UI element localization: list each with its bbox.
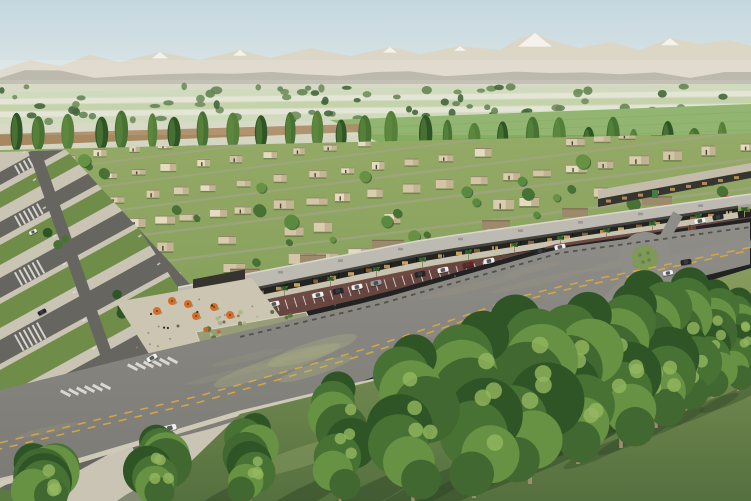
house-roofline (598, 161, 613, 162)
tree-highlight (740, 339, 749, 348)
house-roofline (132, 169, 146, 170)
tree-highlight (712, 315, 722, 325)
palm-crown (513, 243, 516, 246)
rooftop-unit (278, 271, 283, 274)
pedestrian (150, 313, 152, 315)
house-door (327, 147, 328, 150)
plaza-texture (198, 299, 200, 301)
house-side (139, 218, 146, 227)
plaza-texture (224, 314, 226, 316)
house-side (170, 163, 176, 171)
palm-trunk (652, 224, 653, 231)
house-door (314, 173, 315, 177)
tree-highlight (407, 400, 422, 415)
median-curb-dash (537, 258, 542, 259)
yard-tree (517, 177, 526, 186)
house-shadow (566, 145, 585, 146)
median-curb-dash (249, 334, 254, 335)
median-curb-dash (681, 236, 686, 237)
house-roofline (309, 170, 326, 171)
poplar-highlight (97, 119, 104, 147)
tree-highlight (408, 423, 423, 438)
yard-tree (461, 186, 472, 197)
house-roofline (197, 159, 210, 160)
shrub (210, 333, 213, 336)
house-roofline (223, 263, 244, 264)
house-door (602, 164, 603, 168)
median-curb-dash (636, 242, 641, 243)
house-roofline (210, 209, 227, 210)
house-shadow (519, 206, 539, 208)
median-curb-dash (708, 232, 713, 233)
light-pole-head (334, 304, 336, 306)
median-curb-dash (384, 302, 389, 303)
house-shadow (439, 161, 453, 162)
house-shadow (367, 197, 382, 199)
tree-highlight (535, 365, 552, 382)
storefront-glow (402, 261, 408, 265)
yard-tree (393, 209, 402, 218)
median-curb-dash (609, 246, 614, 247)
house-roofline (594, 187, 609, 188)
palm-crown (605, 229, 608, 232)
median-curb-dash (582, 249, 587, 250)
median-curb-dash (573, 251, 578, 252)
far-window-glow (670, 188, 675, 191)
house-door (745, 147, 746, 150)
median-curb-dash (546, 256, 551, 257)
tree-highlight (423, 425, 438, 440)
rooftop-unit (638, 213, 643, 216)
poplar-highlight (149, 116, 154, 147)
house-side (220, 209, 227, 217)
house-shadow (147, 198, 159, 199)
house-door (297, 150, 298, 154)
house-shadow (132, 175, 146, 176)
yard-tree (284, 215, 299, 230)
shrub (270, 310, 274, 314)
house-side (674, 150, 681, 160)
house-door (508, 176, 509, 180)
rooftop-unit (458, 238, 463, 241)
house-shadow (629, 164, 648, 166)
house-door (635, 159, 636, 164)
scene-canvas (0, 0, 751, 501)
house-shadow (237, 186, 251, 187)
poplar-highlight (286, 115, 291, 147)
median-curb-dash (321, 317, 326, 318)
house-roofline (128, 218, 145, 219)
house-shadow (358, 146, 370, 147)
yard-tree (553, 194, 561, 202)
poplar-highlight (116, 114, 123, 147)
tree-highlight (532, 337, 549, 354)
storefront-glow (366, 269, 372, 273)
median-curb-dash (375, 304, 380, 305)
shrub (217, 330, 221, 334)
palm-crown (743, 207, 746, 210)
median-curb-dash (501, 268, 506, 269)
yard-tree (256, 183, 266, 193)
house-roofline (372, 161, 384, 162)
house-roofline (147, 190, 159, 191)
tree-highlight (248, 468, 258, 478)
poplar-highlight (228, 116, 235, 147)
median-curb-dash (492, 271, 497, 272)
house-side (167, 216, 175, 224)
house-roofline (274, 199, 294, 200)
median-curb-dash (240, 336, 245, 337)
shrub (218, 321, 223, 326)
yard-tree (533, 212, 540, 219)
median-curb-dash (420, 291, 425, 292)
median-curb-dash (438, 286, 443, 287)
back-building (562, 208, 588, 217)
house-roofline (314, 222, 332, 223)
house-door (669, 155, 670, 160)
rooftop-unit (338, 259, 343, 262)
house-roofline (741, 144, 751, 145)
house-door (201, 162, 202, 166)
plaza-texture (149, 343, 151, 345)
house-shadow (702, 155, 716, 157)
median-curb-dash (735, 229, 740, 230)
palm-trunk (330, 280, 331, 287)
tree-highlight (149, 473, 160, 484)
patio-table (223, 321, 226, 324)
tree-foliage (329, 469, 360, 500)
house-roofline (180, 214, 200, 215)
rooftop-unit (698, 204, 703, 207)
house-side (344, 192, 350, 201)
far-window-glow (686, 185, 691, 188)
house-roofline (702, 146, 716, 147)
far-window-glow (734, 176, 739, 179)
house-roofline (439, 154, 453, 155)
median-curb-dash (447, 284, 452, 285)
median-curb-dash (672, 237, 677, 238)
house-side (319, 197, 327, 204)
palm-trunk (284, 289, 285, 296)
house-side (167, 242, 173, 252)
palm-crown (697, 215, 700, 218)
house-door (150, 193, 151, 197)
house-side (325, 222, 332, 232)
palm-trunk (744, 210, 745, 217)
tree-highlight (155, 454, 166, 465)
median-curb-dash (510, 266, 515, 267)
median-curb-dash (645, 241, 650, 242)
median-curb-dash (258, 332, 263, 333)
house-door (136, 171, 137, 174)
house-side (101, 149, 106, 156)
house-side (710, 146, 715, 156)
house-door (572, 168, 573, 172)
yard-tree (576, 154, 591, 169)
house-door (376, 165, 377, 169)
umbrella-pole (187, 303, 189, 305)
house-shadow (307, 205, 328, 207)
roundabout-shrub (646, 251, 650, 255)
house-roofline (533, 170, 551, 171)
house-roofline (475, 148, 491, 149)
median-curb-dash (654, 240, 659, 241)
plaza-texture (251, 305, 253, 307)
house-side (413, 183, 420, 192)
house-roofline (503, 172, 520, 173)
house-roofline (367, 189, 382, 190)
house-roofline (107, 196, 124, 197)
poplar-highlight (12, 116, 18, 149)
median-curb-dash (429, 289, 434, 290)
median-curb-dash (528, 261, 533, 262)
house-side (481, 176, 488, 184)
yard-tree (567, 185, 575, 193)
house-side (320, 170, 327, 178)
house-shadow (174, 194, 189, 195)
tree-highlight (47, 484, 59, 496)
palm-trunk (422, 260, 423, 267)
palm-trunk (514, 246, 515, 253)
rooftop-unit (578, 221, 583, 224)
tree-highlight (667, 378, 681, 392)
far-window-glow (622, 197, 627, 200)
house-door (706, 150, 707, 155)
house-roofline (471, 176, 488, 177)
house-shadow (210, 217, 227, 219)
house-shadow (594, 142, 610, 143)
palm-crown (651, 222, 654, 225)
house-roofline (566, 138, 585, 139)
palm-crown (375, 267, 378, 270)
house-shadow (309, 177, 326, 178)
storefront-glow (294, 283, 300, 287)
house-shadow (566, 172, 587, 174)
house-shadow (293, 154, 304, 155)
median-curb-dash (474, 276, 479, 277)
house-shadow (160, 171, 176, 172)
house-roofline (237, 180, 251, 181)
median-curb-dash (564, 252, 569, 253)
green-sign (652, 190, 658, 198)
house-side (237, 155, 242, 162)
umbrella-pole (213, 306, 215, 308)
rooftop-unit (398, 248, 403, 251)
storefront-glow (384, 265, 390, 269)
median-curb-dash (456, 281, 461, 282)
house-door (233, 158, 234, 162)
tree-highlight (588, 403, 603, 418)
aerial-rendering (0, 0, 751, 501)
house-roofline (293, 147, 304, 148)
poplar-highlight (33, 119, 40, 149)
house-roofline (403, 183, 420, 184)
house-shadow (230, 162, 242, 163)
far-window-glow (606, 200, 611, 203)
shrub (243, 322, 247, 326)
median-curb-dash (339, 313, 344, 314)
house-door (162, 246, 163, 251)
house-roofline (235, 206, 251, 207)
shrub (215, 317, 219, 321)
house-side (447, 154, 453, 161)
roundabout-shrub (647, 258, 651, 262)
house-door (280, 204, 281, 209)
house-roofline (218, 236, 236, 237)
umbrella-pole (229, 314, 231, 316)
storefront-glow (456, 252, 462, 256)
pedestrian (167, 327, 169, 329)
shrub (285, 315, 289, 319)
house-shadow (155, 224, 175, 226)
house-side (485, 148, 492, 157)
median-curb-dash (366, 306, 371, 307)
house-door (132, 148, 133, 151)
house-shadow (324, 151, 337, 152)
house-side (446, 179, 453, 189)
poplar-highlight (313, 114, 319, 148)
shrub (203, 327, 208, 332)
house-door (240, 210, 241, 214)
plaza-texture (157, 345, 159, 347)
median-curb-dash (519, 263, 524, 264)
median-curb-dash (411, 294, 416, 295)
median-curb-dash (348, 310, 353, 311)
house-roofline (155, 216, 175, 217)
median-curb-dash (627, 243, 632, 244)
median-curb-dash (618, 244, 623, 245)
back-building-roof (300, 254, 326, 255)
haze-low (0, 80, 751, 135)
house-shadow (263, 158, 276, 159)
yard-tree (330, 237, 336, 243)
rooftop-unit (518, 229, 523, 232)
yard-tree (381, 216, 393, 228)
median-curb-dash (294, 323, 299, 324)
house-roofline (317, 253, 339, 254)
median-curb-dash (402, 296, 407, 297)
house-shadow (200, 191, 215, 192)
house-shadow (741, 150, 751, 152)
tree-foliage (401, 460, 441, 500)
house-shadow (158, 148, 173, 149)
house-side (272, 151, 277, 158)
median-curb-dash (663, 238, 668, 239)
house-side (154, 190, 159, 198)
house-shadow (663, 160, 682, 162)
tree-highlight (629, 360, 644, 375)
house-side (379, 161, 384, 169)
house-roofline (289, 253, 313, 254)
plaza-texture (158, 326, 160, 328)
storefront-glow (348, 272, 354, 276)
median-curb-dash (357, 308, 362, 309)
yard-tree (717, 186, 728, 197)
median-tree (112, 290, 121, 299)
house-shadow (314, 232, 332, 234)
poplar-highlight (63, 117, 69, 148)
house-roofline (348, 248, 369, 249)
palm-crown (329, 277, 332, 280)
house-roofline (274, 174, 287, 175)
house-shadow (129, 152, 139, 153)
shrub (237, 314, 240, 317)
house-shadow (598, 168, 613, 170)
house-side (281, 174, 286, 182)
house-side (205, 159, 210, 166)
house-shadow (274, 182, 287, 183)
far-window-glow (718, 179, 723, 182)
tree-highlight (345, 447, 356, 458)
yard-tree (193, 215, 199, 221)
house-roofline (93, 149, 106, 150)
house-side (506, 199, 514, 210)
shrub (238, 310, 243, 315)
house-side (607, 161, 613, 169)
median-curb-dash (330, 315, 335, 316)
tree-highlight (478, 353, 495, 370)
tree-foliage (615, 407, 655, 447)
yard-tree (359, 171, 371, 183)
tree-highlight (335, 433, 346, 444)
tree-highlight (612, 379, 627, 394)
house-roofline (436, 179, 453, 180)
tree-highlight (716, 330, 726, 340)
house-side (300, 147, 304, 154)
roundabout-shrub (641, 260, 645, 264)
median-tree (43, 228, 53, 238)
yard-tree (472, 198, 480, 206)
roundabout-shrub (638, 253, 642, 257)
palm-crown (421, 258, 424, 261)
house-side (286, 199, 294, 208)
house-shadow (475, 157, 491, 158)
median-curb-dash (591, 248, 596, 249)
house-door (443, 157, 444, 160)
house-door (499, 204, 500, 209)
shrub (256, 315, 258, 317)
back-building-roof (482, 220, 510, 221)
median-curb-dash (699, 233, 704, 234)
house-roofline (493, 199, 514, 200)
house-shadow (274, 209, 294, 211)
back-building-roof (372, 240, 404, 241)
house-shadow (372, 170, 384, 171)
tree-highlight (43, 464, 55, 476)
house-door (97, 152, 98, 156)
tree-highlight (687, 322, 700, 335)
house-door (345, 170, 346, 173)
pedestrian (211, 304, 213, 306)
house-shadow (619, 139, 636, 140)
plaza-texture (169, 338, 171, 340)
yard-tree (99, 168, 109, 178)
patio-table (177, 325, 180, 328)
storefront-glow (474, 249, 480, 253)
median-curb-dash (312, 319, 317, 320)
median-tree (53, 240, 62, 249)
house-side (544, 170, 551, 177)
median-curb-dash (600, 247, 605, 248)
tree-highlight (487, 434, 504, 451)
house-shadow (493, 209, 514, 211)
house-side (577, 138, 584, 145)
house-side (229, 236, 236, 244)
yard-tree (172, 205, 181, 214)
median-curb-dash (267, 329, 272, 330)
house-shadow (471, 184, 488, 186)
house-roofline (263, 151, 276, 152)
